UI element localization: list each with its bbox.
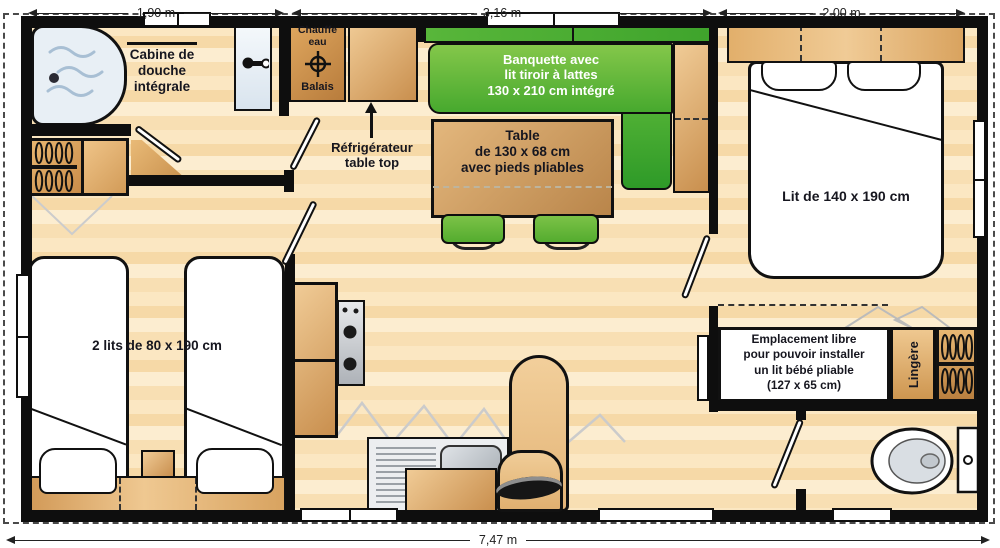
fridge-label: Réfrigérateurtable top (320, 140, 424, 171)
wall-baby-space (709, 400, 979, 411)
wall-cap (284, 170, 294, 192)
window (16, 274, 30, 398)
wall-master-bedroom (709, 16, 718, 234)
wardrobe-column (673, 43, 710, 193)
wall-bottom (21, 510, 302, 522)
water-heater-icon (304, 50, 332, 78)
window (300, 508, 398, 522)
wall-wc (796, 400, 806, 420)
wall-hall (129, 175, 289, 186)
wall-bottom (891, 510, 987, 522)
shelf-space (84, 141, 126, 193)
arrow-right-icon (703, 9, 712, 17)
entrance-door (598, 508, 714, 522)
dashed-line (119, 478, 121, 510)
stove-burners-icon (339, 302, 362, 383)
hangers-icon (31, 141, 77, 193)
dashed-line (880, 25, 882, 61)
fridge-cabinet (348, 20, 418, 102)
arrow-right-icon (981, 536, 990, 544)
label-rule (127, 42, 197, 45)
panel (697, 335, 709, 401)
fridge-arrow-icon (370, 112, 373, 138)
washbasin (234, 26, 272, 111)
wall-right (977, 16, 988, 522)
drain-icon (49, 73, 59, 83)
hanging-space (31, 141, 84, 193)
stool (533, 214, 599, 244)
double-bed-label: Lit de 140 x 190 cm (763, 188, 929, 205)
pillow (39, 448, 117, 494)
shower-label: Cabine dedoucheintégrale (116, 47, 208, 95)
baby-space-label: Emplacement librepour pouvoir installer … (721, 332, 887, 393)
single-bed (28, 256, 129, 480)
kitchen-cabinet (292, 282, 338, 438)
arrow-right-icon (275, 9, 284, 17)
wall-wc (796, 489, 806, 511)
hangers-icon (939, 330, 974, 399)
wardrobe (28, 138, 129, 196)
kitchen-cabinet-front (405, 468, 497, 512)
arrow-left-icon (718, 9, 727, 17)
dashed-line (718, 304, 888, 306)
water-waves-icon (34, 28, 122, 120)
wall-bottom (714, 510, 834, 522)
dimension-label: 3,16 m (474, 6, 530, 20)
banquette-label: Banquette aveclit tiroir à lattes130 x 2… (434, 52, 668, 98)
dimension-bottom: 7,47 m (6, 533, 990, 547)
arrow-left-icon (292, 9, 301, 17)
double-bed (748, 61, 944, 279)
table-label: Tablede 130 x 68 cmavec pieds pliables (436, 128, 609, 176)
arrow-left-icon (28, 9, 37, 17)
arrow-left-icon (6, 536, 15, 544)
floor-plan: 1,90 m 3,16 m 2,00 m 7,47 m (0, 0, 1000, 548)
faucet-icon (236, 28, 269, 108)
window (973, 120, 986, 238)
dimension-top-right: 2,00 m (718, 6, 965, 20)
wall-bathroom (279, 16, 289, 116)
window (832, 508, 892, 522)
dashed-line (675, 118, 708, 120)
broom-label: Balais (289, 81, 346, 94)
stool (441, 214, 505, 244)
dimension-label: 2,00 m (813, 6, 869, 20)
pillow (847, 61, 921, 91)
hanging-wardrobe (936, 327, 977, 402)
wall-baby-space (709, 306, 718, 412)
linen-closet-label: Lingère (890, 327, 936, 402)
nightstand (141, 450, 175, 478)
wall-kids-room (285, 254, 295, 510)
shower-tray (31, 25, 127, 126)
single-bed (184, 256, 285, 480)
twin-beds-label: 2 lits de 80 x 190 cm (72, 338, 242, 354)
stove (337, 300, 365, 386)
dimension-label: 7,47 m (470, 533, 526, 547)
pillow (761, 61, 837, 91)
table-fold-line (433, 186, 612, 188)
dashed-line (800, 25, 802, 61)
fridge-arrow-head-icon (365, 102, 377, 113)
headboard-storage (727, 23, 965, 63)
pillow (196, 448, 274, 494)
wall-left (21, 16, 32, 522)
arrow-right-icon (956, 9, 965, 17)
wall-bathroom (21, 124, 131, 136)
dimension-label: 1,90 m (128, 6, 184, 20)
toilet-icon (868, 424, 982, 498)
dimension-top-middle: 3,16 m (292, 6, 712, 20)
dimension-top-left: 1,90 m (28, 6, 284, 20)
water-heater-label: Chauffeeau (289, 24, 346, 49)
